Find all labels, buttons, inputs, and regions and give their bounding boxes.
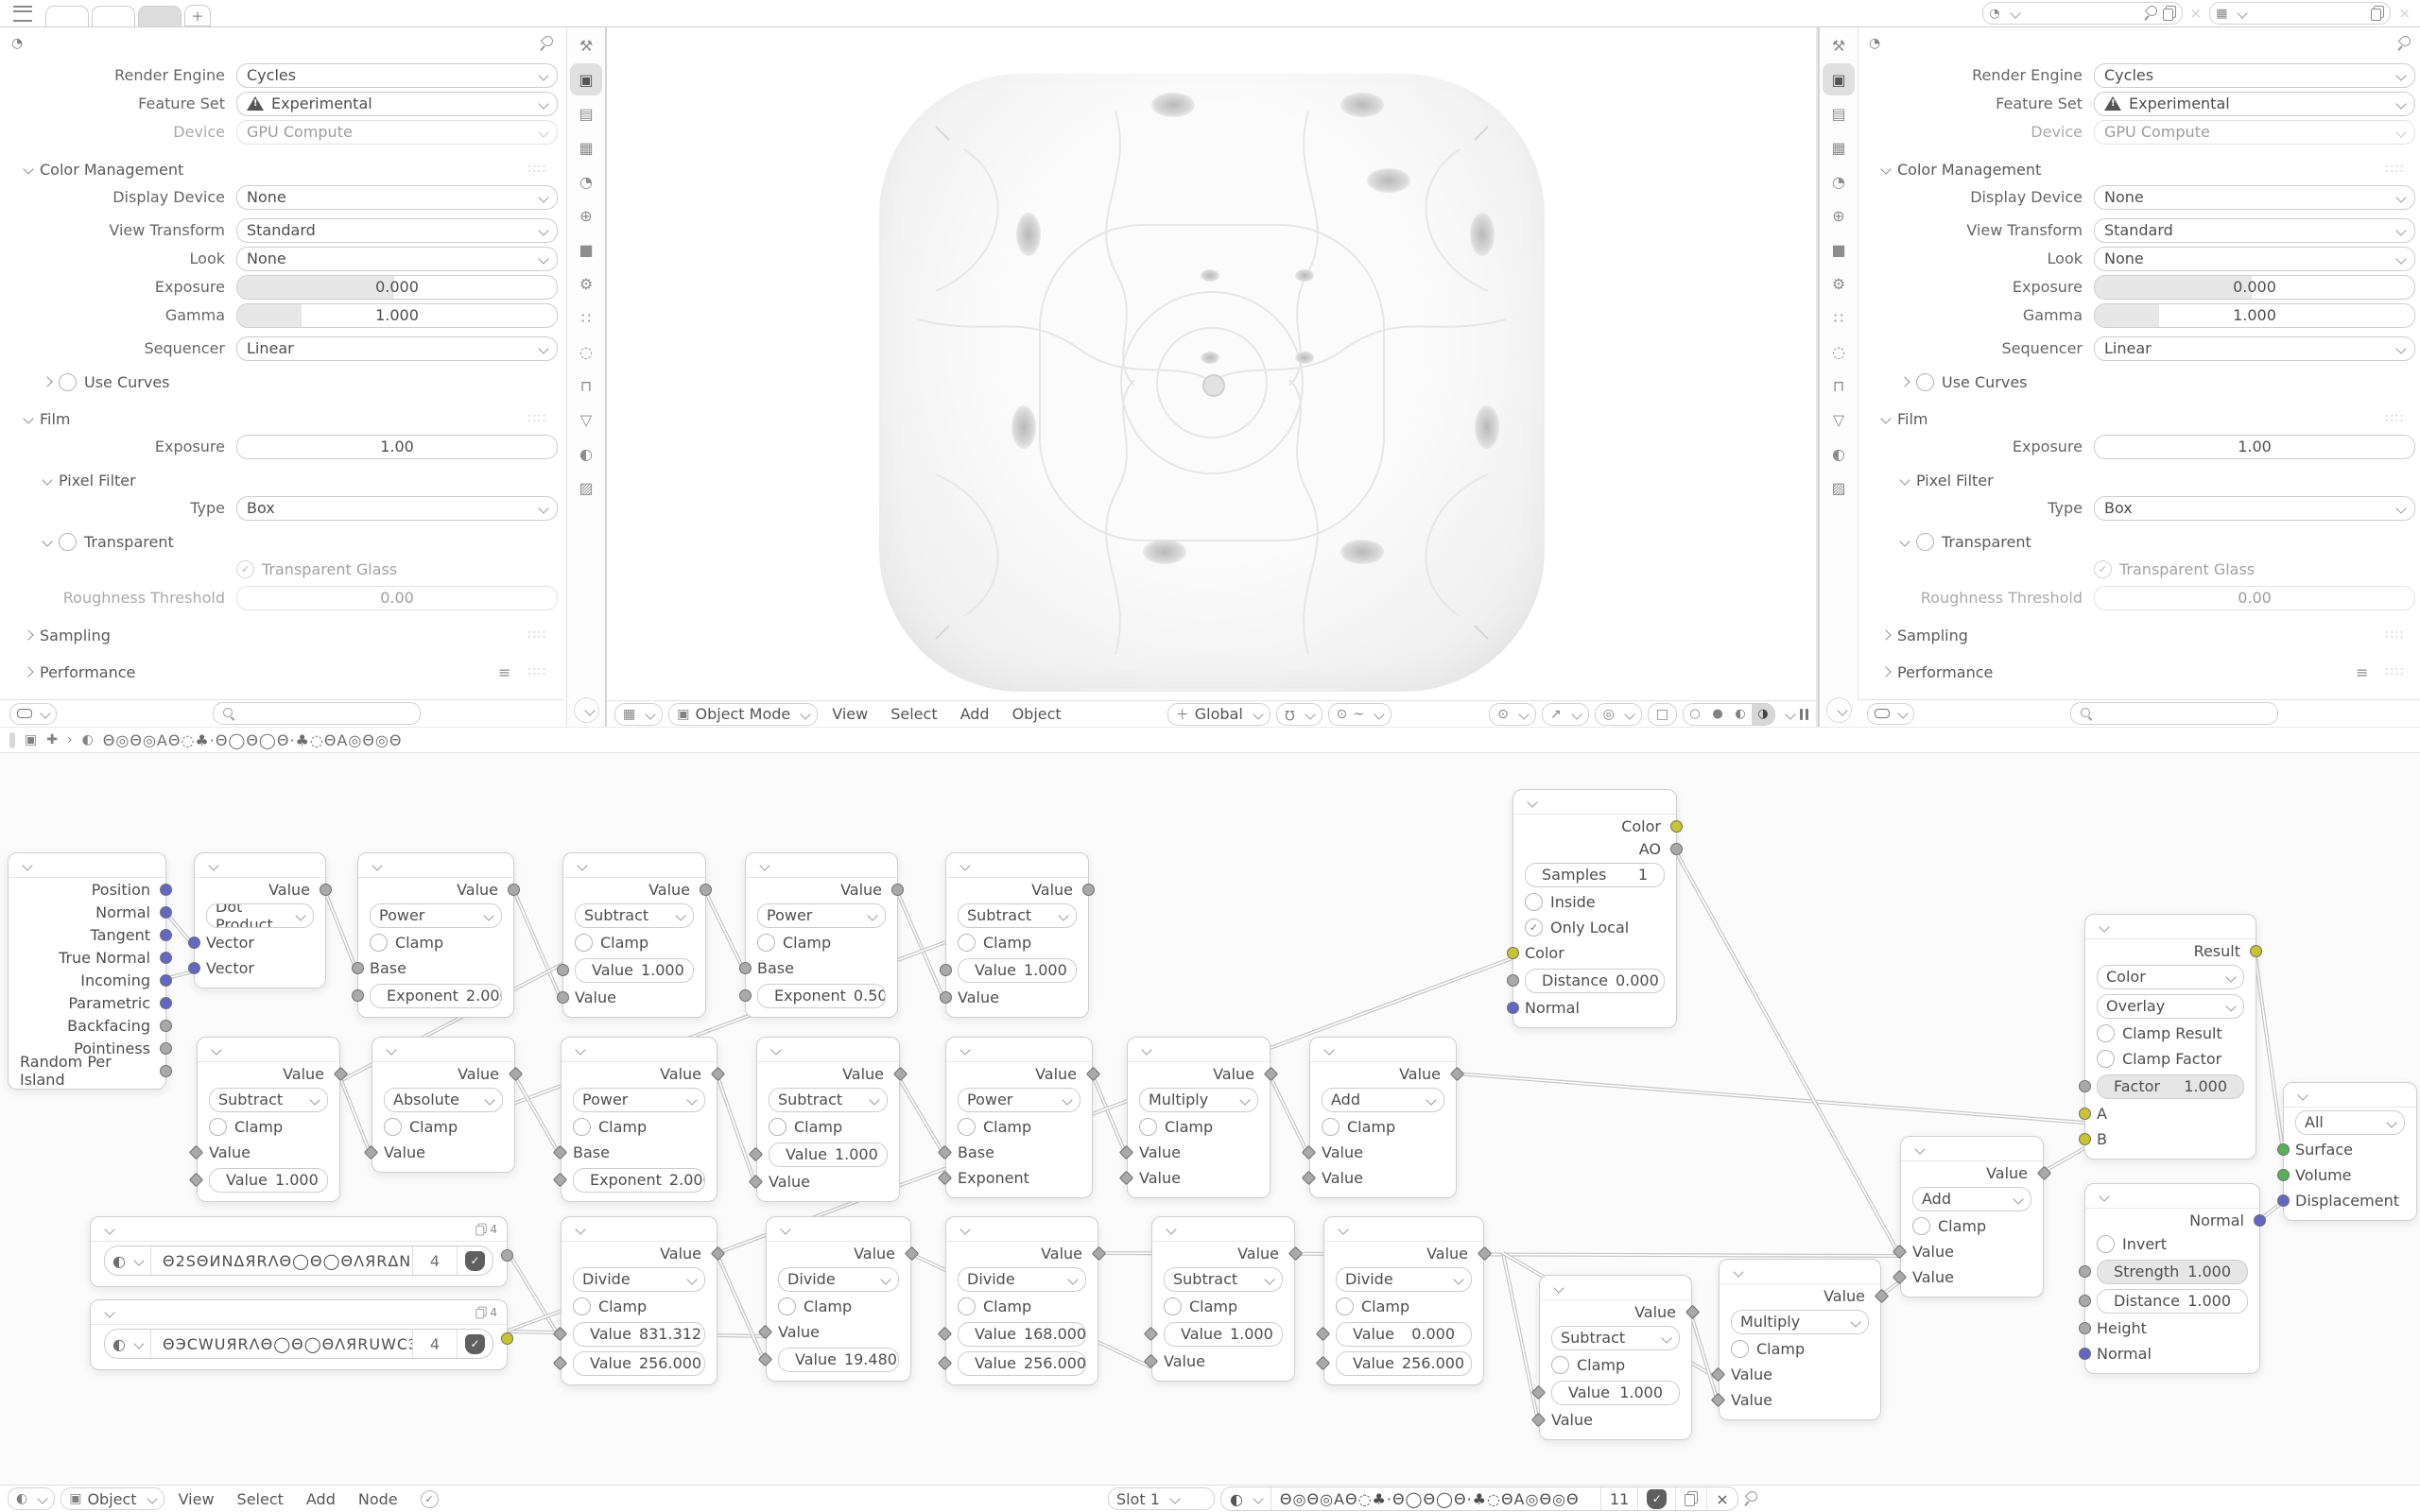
dropdown-add[interactable]: Add [1912, 1187, 2031, 1211]
field-roughness-threshold[interactable]: 0.00 [236, 586, 558, 610]
overlays-control[interactable]: ◎ [1595, 703, 1642, 726]
properties-tab-modifiers[interactable]: ⚙ [1823, 267, 1855, 300]
node-canvas[interactable]: PositionNormalTangentTrue NormalIncoming… [0, 753, 2420, 1485]
field-distance[interactable]: Distance1.000 [2097, 1289, 2248, 1314]
properties-tab-material[interactable]: ◐ [570, 438, 602, 470]
socket[interactable] [188, 962, 200, 974]
node-header[interactable] [757, 1038, 899, 1062]
node-math-add-2[interactable]: ValueAddClampValueValue [1900, 1136, 2044, 1297]
dropdown-divide[interactable]: Divide [778, 1267, 899, 1292]
dropdown-view-transform[interactable]: Standard [2094, 218, 2415, 243]
socket[interactable] [2079, 1348, 2091, 1360]
socket[interactable] [2277, 1169, 2290, 1181]
properties-tab-render[interactable]: ▣ [570, 63, 602, 95]
socket[interactable] [2079, 1108, 2091, 1120]
field-value[interactable]: Value19.480 [778, 1348, 899, 1372]
socket[interactable] [160, 1020, 172, 1032]
properties-tab-output[interactable]: ▤ [1823, 97, 1855, 129]
checkbox-clamp[interactable] [1322, 1118, 1340, 1136]
pin-icon[interactable] [2397, 36, 2411, 51]
properties-tab-output[interactable]: ▤ [570, 97, 602, 129]
properties-tab-constraints[interactable]: ⊓ [570, 369, 602, 402]
shading-rendered-icon[interactable]: ◑ [1752, 704, 1774, 725]
dropdown-subtract[interactable]: Subtract [769, 1088, 888, 1112]
orientation-selector[interactable]: ＋Global [1167, 703, 1270, 726]
node-math-divide-1[interactable]: ValueDivideClampValue831.312Value256.000 [561, 1216, 717, 1385]
properties-tab-texture[interactable]: ▨ [1823, 472, 1855, 504]
socket[interactable] [2254, 1214, 2266, 1227]
dropdown-multiply[interactable]: Multiply [1139, 1088, 1258, 1112]
subsection-use-curves[interactable]: Use Curves [1858, 369, 2420, 394]
field-value[interactable]: Value256.000 [1336, 1351, 1472, 1376]
field-value[interactable]: Value1.000 [1551, 1381, 1680, 1405]
node-header[interactable] [1540, 1276, 1691, 1300]
checkbox[interactable] [1916, 373, 1934, 391]
node-math-add-1[interactable]: ValueAddClampValueValue [1309, 1037, 1457, 1198]
node-math-multiply-1[interactable]: ValueMultiplyClampValueValue [1127, 1037, 1270, 1198]
menu-select[interactable]: Select [229, 1490, 292, 1508]
properties-tab-constraints[interactable]: ⊓ [1823, 369, 1855, 402]
field-value[interactable]: Value168.000 [958, 1322, 1086, 1347]
socket[interactable] [160, 952, 172, 964]
checkbox-clamp[interactable] [958, 1118, 976, 1136]
socket[interactable] [508, 884, 520, 896]
section-film[interactable]: Film∷∷ [0, 406, 564, 431]
node-header[interactable]: 4 [91, 1300, 507, 1325]
socket[interactable] [2250, 945, 2262, 957]
node-material-output[interactable]: AllSurfaceVolumeDisplacement [2283, 1082, 2417, 1221]
viewport-3d[interactable]: ▦▣Object ModeViewSelectAddObject＋GlobalΩ… [607, 27, 1816, 727]
pause-icon[interactable] [1800, 709, 1808, 720]
node-header[interactable] [946, 1217, 1098, 1242]
menu-add[interactable]: Add [952, 705, 998, 723]
properties-tab-physics[interactable]: ◌ [1823, 335, 1855, 368]
node-math-power-2[interactable]: ValuePowerClampBaseExponent0.500 [745, 852, 898, 1018]
node-header[interactable]: 4 [91, 1217, 507, 1242]
socket[interactable] [2277, 1194, 2290, 1207]
checkbox-clamp[interactable] [958, 934, 976, 952]
node-header[interactable] [562, 1217, 717, 1242]
node-math-power-3[interactable]: ValuePowerClampBaseExponent2.000 [561, 1037, 717, 1202]
field-value[interactable]: Value0.000 [1336, 1322, 1472, 1347]
socket[interactable] [1670, 843, 1683, 855]
dropdown-look[interactable]: None [236, 247, 558, 271]
properties-tab-scene[interactable]: ◔ [570, 165, 602, 198]
node-math-subtract-1[interactable]: ValueSubtractClampValue1.000Value [562, 852, 706, 1018]
workspace-tab[interactable] [138, 6, 181, 26]
dropdown-dot-product[interactable]: Dot Product [206, 903, 314, 928]
node-image-group-2[interactable]: 4◐ΘЭCWUЯRΛΘ◯Θ◯ΘΛЯRUWCЭΘ4✓ [90, 1299, 508, 1370]
socket[interactable] [2079, 1295, 2091, 1307]
field-exposure[interactable]: 0.000 [236, 275, 558, 300]
field-exponent[interactable]: Exponent2.000 [573, 1168, 705, 1193]
node-math-power-4[interactable]: ValuePowerClampBaseExponent [945, 1037, 1093, 1198]
xray-toggle[interactable]: □ [1648, 703, 1677, 726]
properties-tab-object-data[interactable]: ▽ [570, 404, 602, 436]
properties-tab-particles[interactable]: ∷ [1823, 301, 1855, 334]
menu-view[interactable]: View [823, 705, 876, 723]
subsection-transparent[interactable]: Transparent [0, 529, 564, 554]
dropdown-subtract[interactable]: Subtract [958, 903, 1077, 928]
dropdown-multiply[interactable]: Multiply [1731, 1310, 1869, 1334]
shader-type-selector[interactable]: ◐ [8, 1487, 55, 1510]
checkbox-clamp[interactable] [958, 1297, 976, 1315]
dropdown-feature-set[interactable]: Experimental [236, 92, 558, 116]
properties-tab-world[interactable]: ⊕ [1823, 199, 1855, 232]
checkbox-clamp[interactable] [573, 1297, 591, 1315]
checkbox[interactable] [59, 533, 77, 551]
subsection-pixel-filter[interactable]: Pixel Filter [1858, 468, 2420, 492]
checkbox-clamp[interactable] [573, 1118, 591, 1136]
node-header[interactable] [1324, 1217, 1483, 1242]
field-exponent[interactable]: Exponent0.500 [757, 984, 886, 1008]
dropdown-type[interactable]: Box [2094, 496, 2415, 521]
checkbox-clamp-result[interactable] [2097, 1024, 2115, 1042]
properties-tab-material[interactable]: ◐ [1823, 438, 1855, 470]
view-layer-name-field[interactable] [2252, 6, 2365, 21]
properties-tab-object[interactable]: ■ [570, 233, 602, 266]
socket[interactable] [501, 1249, 513, 1262]
field-strength[interactable]: Strength1.000 [2097, 1260, 2248, 1284]
properties-search-input[interactable] [213, 702, 421, 725]
node-header[interactable] [946, 853, 1088, 878]
checkbox-only-local[interactable]: ✓ [1525, 919, 1543, 936]
checkbox-clamp-factor[interactable] [2097, 1050, 2115, 1068]
dropdown-subtract[interactable]: Subtract [1551, 1326, 1680, 1350]
socket[interactable] [1507, 947, 1519, 959]
image-datablock-control[interactable]: ◐Θ2SΘИNΔЯRΛΘ◯Θ◯ΘΛЯRΔNИΘS2Θ4✓ [104, 1246, 493, 1276]
filter-toggle-button[interactable] [9, 703, 57, 725]
socket[interactable] [501, 1332, 513, 1345]
node-header[interactable] [562, 1038, 717, 1062]
checkbox-transparent-glass[interactable]: ✓ [2094, 560, 2112, 578]
node-math-divide-4[interactable]: ValueDivideClampValue0.000Value256.000 [1323, 1216, 1484, 1385]
node-header[interactable] [1513, 790, 1676, 815]
field-exponent[interactable]: Exponent2.000 [370, 984, 502, 1008]
dropdown-device[interactable]: GPU Compute [236, 120, 558, 145]
node-header[interactable] [946, 1038, 1092, 1062]
socket[interactable] [160, 1042, 172, 1055]
field-samples[interactable]: Samples1 [1525, 863, 1665, 887]
field-gamma[interactable]: 1.000 [2094, 303, 2415, 328]
scene-name-field[interactable] [2025, 6, 2138, 21]
fake-user-button[interactable]: ✓ [1638, 1487, 1676, 1510]
properties-tab-object-data[interactable]: ▽ [1823, 404, 1855, 436]
view-layer-selector[interactable]: ▦ [2209, 2, 2391, 25]
shading-wireframe-icon[interactable]: ○ [1684, 704, 1706, 725]
node-math-divide-2[interactable]: ValueDivideClampValueValue19.480 [766, 1216, 911, 1382]
node-header[interactable] [2085, 915, 2256, 939]
node-header[interactable] [767, 1217, 910, 1242]
dropdown-subtract[interactable]: Subtract [575, 903, 694, 928]
socket[interactable] [352, 989, 364, 1002]
node-math-subtract-6[interactable]: ValueSubtractClampValue1.000Value [1539, 1275, 1692, 1440]
gizmo-control[interactable]: ↗ [1542, 703, 1589, 726]
workspace-tab[interactable] [92, 6, 135, 26]
properties-tab-view-layer[interactable]: ▦ [1823, 131, 1855, 163]
socket[interactable] [739, 962, 752, 974]
dropdown-overlay[interactable]: Overlay [2097, 994, 2244, 1019]
checkbox-clamp[interactable] [1551, 1356, 1569, 1374]
field-value[interactable]: Value1.000 [575, 958, 694, 983]
snapping-control[interactable]: Ω [1276, 703, 1322, 726]
copy-icon[interactable] [2163, 6, 2176, 21]
copy-button[interactable] [1676, 1487, 1707, 1510]
properties-tab-texture[interactable]: ▨ [570, 472, 602, 504]
node-header[interactable] [372, 1038, 514, 1062]
socket[interactable] [160, 997, 172, 1009]
subsection-pixel-filter[interactable]: Pixel Filter [0, 468, 564, 492]
properties-search-input[interactable] [2070, 702, 2278, 725]
collapse-button[interactable] [574, 697, 599, 723]
shading-solid-icon[interactable]: ● [1706, 704, 1729, 725]
socket[interactable] [1670, 820, 1683, 833]
mode-selector[interactable]: ▣Object Mode [668, 703, 818, 726]
image-datablock-control[interactable]: ◐ΘЭCWUЯRΛΘ◯Θ◯ΘΛЯRUWCЭΘ4✓ [104, 1329, 493, 1359]
visibility-control[interactable]: ⊙ [1489, 703, 1536, 726]
dropdown-add[interactable]: Add [1322, 1088, 1444, 1112]
field-gamma[interactable]: 1.000 [236, 303, 558, 328]
dropdown-type[interactable]: Box [236, 496, 558, 521]
dropdown-power[interactable]: Power [370, 903, 502, 928]
pin-icon[interactable] [2144, 6, 2157, 21]
dropdown-display-device[interactable]: None [2094, 185, 2415, 210]
properties-tab-render[interactable]: ▣ [1823, 63, 1855, 95]
section-performance[interactable]: Performance≡∷∷ [1858, 660, 2420, 684]
socket[interactable] [160, 884, 172, 896]
socket[interactable] [352, 962, 364, 974]
checkbox-clamp[interactable] [778, 1297, 796, 1315]
slot-selector[interactable]: Slot 1 [1108, 1487, 1215, 1510]
fake-user-shield-icon[interactable]: ✓ [458, 1330, 493, 1358]
id-type-selector[interactable]: ▣Object [60, 1487, 164, 1510]
app-menu-icon[interactable] [13, 6, 32, 22]
socket[interactable] [2079, 1322, 2091, 1334]
dropdown-divide[interactable]: Divide [573, 1267, 705, 1292]
checkbox-clamp[interactable] [1164, 1297, 1182, 1315]
checkbox-clamp[interactable] [757, 934, 775, 952]
node-math-subtract-2[interactable]: ValueSubtractClampValue1.000Value [945, 852, 1089, 1018]
socket[interactable] [2079, 1080, 2091, 1092]
use-nodes-checkbox[interactable]: ✓ [412, 1490, 447, 1508]
node-header[interactable] [1310, 1038, 1456, 1062]
dropdown-divide[interactable]: Divide [958, 1267, 1086, 1292]
node-math-subtract-4[interactable]: ValueSubtractClampValue1.000Value [756, 1037, 900, 1202]
node-math-subtract-3[interactable]: ValueSubtractClampValueValue1.000 [197, 1037, 340, 1202]
menu-object[interactable]: Object [1004, 705, 1070, 723]
subsection-use-curves[interactable]: Use Curves [0, 369, 564, 394]
socket[interactable] [320, 884, 332, 896]
node-math-subtract-5[interactable]: ValueSubtractClampValue1.000Value [1151, 1216, 1295, 1382]
socket[interactable] [557, 964, 569, 976]
dropdown-all[interactable]: All [2295, 1110, 2405, 1135]
fake-user-shield-icon[interactable]: ✓ [458, 1246, 493, 1275]
properties-tab-tool[interactable]: ⚒ [1823, 29, 1855, 61]
properties-tab-object[interactable]: ■ [1823, 233, 1855, 266]
subsection-transparent[interactable]: Transparent [1858, 529, 2420, 554]
dropdown-feature-set[interactable]: Experimental [2094, 92, 2415, 116]
menu-view[interactable]: View [170, 1490, 223, 1508]
menu-select[interactable]: Select [882, 705, 945, 723]
socket[interactable] [557, 991, 569, 1004]
node-header[interactable] [746, 853, 897, 878]
checkbox-clamp[interactable] [370, 934, 388, 952]
socket[interactable] [1507, 1002, 1519, 1014]
field-value[interactable]: Value1.000 [769, 1143, 888, 1167]
checkbox-clamp[interactable] [1336, 1297, 1354, 1315]
section-color-management[interactable]: Color Management∷∷ [1858, 157, 2420, 181]
checkbox-clamp[interactable] [575, 934, 593, 952]
node-math-power-1[interactable]: ValuePowerClampBaseExponent2.000 [357, 852, 514, 1018]
pin-icon[interactable] [540, 36, 553, 51]
field-value[interactable]: Value831.312 [573, 1322, 705, 1347]
node-mix[interactable]: ResultColorOverlayClamp ResultClamp Fact… [2084, 914, 2256, 1160]
shading-material-icon[interactable]: ◐ [1729, 704, 1752, 725]
socket[interactable] [2277, 1143, 2290, 1156]
field-exposure[interactable]: 0.000 [2094, 275, 2415, 300]
socket[interactable] [739, 989, 752, 1002]
node-header[interactable] [1720, 1260, 1880, 1284]
properties-tab-particles[interactable]: ∷ [570, 301, 602, 334]
node-header[interactable] [198, 1038, 339, 1062]
section-performance[interactable]: Performance≡∷∷ [0, 660, 564, 684]
material-icon[interactable]: ◐ [105, 1246, 151, 1275]
dropdown-divide[interactable]: Divide [1336, 1267, 1472, 1292]
checkbox[interactable] [1916, 533, 1934, 551]
node-math-multiply-2[interactable]: ValueMultiplyClampValueValue [1719, 1259, 1881, 1420]
scroll-nub[interactable] [9, 732, 15, 748]
material-icon[interactable]: ◐ [105, 1330, 151, 1358]
dropdown-subtract[interactable]: Subtract [209, 1088, 328, 1112]
dropdown-power[interactable]: Power [573, 1088, 705, 1112]
node-header[interactable] [195, 853, 325, 878]
node-bump[interactable]: NormalInvertStrength1.000Distance1.000He… [2084, 1183, 2260, 1374]
dropdown-look[interactable]: None [2094, 247, 2415, 271]
menu-add[interactable]: Add [298, 1490, 344, 1508]
field-value[interactable]: Value1.000 [209, 1168, 328, 1193]
socket[interactable] [700, 884, 712, 896]
node-ambient-occlusion[interactable]: ColorAOSamples1Inside✓Only LocalColorDis… [1512, 789, 1677, 1028]
properties-tab-view-layer[interactable]: ▦ [570, 131, 602, 163]
section-sampling[interactable]: Sampling∷∷ [1858, 623, 2420, 647]
socket[interactable] [1082, 884, 1095, 896]
node-header[interactable] [1128, 1038, 1270, 1062]
socket[interactable] [1507, 974, 1519, 987]
socket[interactable] [160, 929, 172, 941]
new-workspace-button[interactable]: + [184, 5, 211, 26]
pin-icon[interactable] [1744, 1491, 1757, 1506]
section-film[interactable]: Film∷∷ [1858, 406, 2420, 431]
properties-tab-physics[interactable]: ◌ [570, 335, 602, 368]
socket[interactable] [188, 936, 200, 949]
socket[interactable] [940, 964, 952, 976]
node-image-group-1[interactable]: 4◐Θ2SΘИNΔЯRΛΘ◯Θ◯ΘΛЯRΔNИΘS2Θ4✓ [90, 1216, 508, 1287]
dropdown-subtract[interactable]: Subtract [1164, 1267, 1283, 1292]
socket[interactable] [160, 974, 172, 987]
checkbox-clamp[interactable] [1139, 1118, 1157, 1136]
properties-tab-world[interactable]: ⊕ [570, 199, 602, 232]
checkbox[interactable] [59, 373, 77, 391]
socket[interactable] [2079, 1265, 2091, 1278]
field-value[interactable]: Value1.000 [1164, 1322, 1283, 1347]
dropdown-power[interactable]: Power [958, 1088, 1080, 1112]
dropdown-color[interactable]: Color [2097, 965, 2244, 989]
dropdown-render-engine[interactable]: Cycles [2094, 63, 2415, 88]
socket[interactable] [160, 1065, 172, 1077]
dropdown-sequencer[interactable]: Linear [2094, 336, 2415, 361]
filter-toggle-button[interactable] [1867, 703, 1914, 725]
node-header[interactable] [2085, 1184, 2259, 1209]
field-value[interactable]: Value256.000 [573, 1351, 705, 1376]
node-header[interactable] [1152, 1217, 1294, 1242]
field-roughness-threshold[interactable]: 0.00 [2094, 586, 2415, 610]
dropdown-display-device[interactable]: None [236, 185, 558, 210]
section-color-management[interactable]: Color Management∷∷ [0, 157, 564, 181]
proportional-editing-control[interactable]: ⊙~ [1328, 703, 1391, 726]
editor-type-selector[interactable]: ▦ [614, 703, 663, 726]
menu-node[interactable]: Node [350, 1490, 406, 1508]
field-value[interactable]: Value256.000 [958, 1351, 1086, 1376]
properties-tab-tool[interactable]: ⚒ [570, 29, 602, 61]
node-header[interactable] [358, 853, 513, 878]
node-header[interactable] [563, 853, 705, 878]
node-geometry[interactable]: PositionNormalTangentTrue NormalIncoming… [8, 852, 166, 1090]
material-icon[interactable]: ◐ [1221, 1487, 1271, 1510]
node-vector-math-dot[interactable]: ValueDot ProductVectorVector [194, 852, 326, 988]
node-math-divide-3[interactable]: ValueDivideClampValue168.000Value256.000 [945, 1216, 1098, 1385]
field-distance[interactable]: Distance0.000 [1525, 969, 1665, 993]
checkbox-clamp[interactable] [209, 1118, 227, 1136]
checkbox-transparent-glass[interactable]: ✓ [236, 560, 254, 578]
socket[interactable] [2079, 1133, 2091, 1145]
properties-tab-modifiers[interactable]: ⚙ [570, 267, 602, 300]
copy-icon[interactable] [2371, 6, 2384, 21]
object-data-icon: ▽ [1833, 411, 1844, 429]
dropdown-render-engine[interactable]: Cycles [236, 63, 558, 88]
field-factor[interactable]: Factor1.000 [2097, 1074, 2244, 1099]
workspace-tab[interactable] [45, 6, 89, 26]
checkbox-clamp[interactable] [384, 1118, 402, 1136]
dropdown-absolute[interactable]: Absolute [384, 1088, 503, 1112]
dropdown-power[interactable]: Power [757, 903, 886, 928]
node-header[interactable] [1901, 1137, 2043, 1161]
section-sampling[interactable]: Sampling∷∷ [0, 623, 564, 647]
checkbox-clamp[interactable] [1731, 1340, 1749, 1358]
unlink-button[interactable]: × [1707, 1487, 1737, 1510]
presets-icon[interactable]: ≡ [2356, 663, 2368, 681]
socket[interactable] [160, 906, 172, 919]
node-header[interactable] [9, 853, 165, 878]
presets-icon[interactable]: ≡ [498, 663, 510, 681]
checkbox-clamp[interactable] [1912, 1217, 1930, 1235]
node-math-absolute[interactable]: ValueAbsoluteClampValue [372, 1037, 515, 1173]
properties-tab-scene[interactable]: ◔ [1823, 165, 1855, 198]
checkbox-inside[interactable] [1525, 893, 1543, 911]
field-value[interactable]: Value1.000 [958, 958, 1077, 983]
field-exposure[interactable]: 1.00 [2094, 435, 2415, 459]
checkbox-invert[interactable] [2097, 1235, 2115, 1253]
checkbox-clamp[interactable] [769, 1118, 786, 1136]
dropdown-view-transform[interactable]: Standard [236, 218, 558, 243]
socket[interactable] [891, 884, 904, 896]
field-exposure[interactable]: 1.00 [236, 435, 558, 459]
collapse-button[interactable] [1826, 697, 1852, 723]
node-header[interactable] [2284, 1083, 2416, 1108]
dropdown-sequencer[interactable]: Linear [236, 336, 558, 361]
dropdown-device[interactable]: GPU Compute [2094, 120, 2415, 145]
scene-selector[interactable]: ◔ [1982, 2, 2182, 25]
socket[interactable] [940, 991, 952, 1004]
